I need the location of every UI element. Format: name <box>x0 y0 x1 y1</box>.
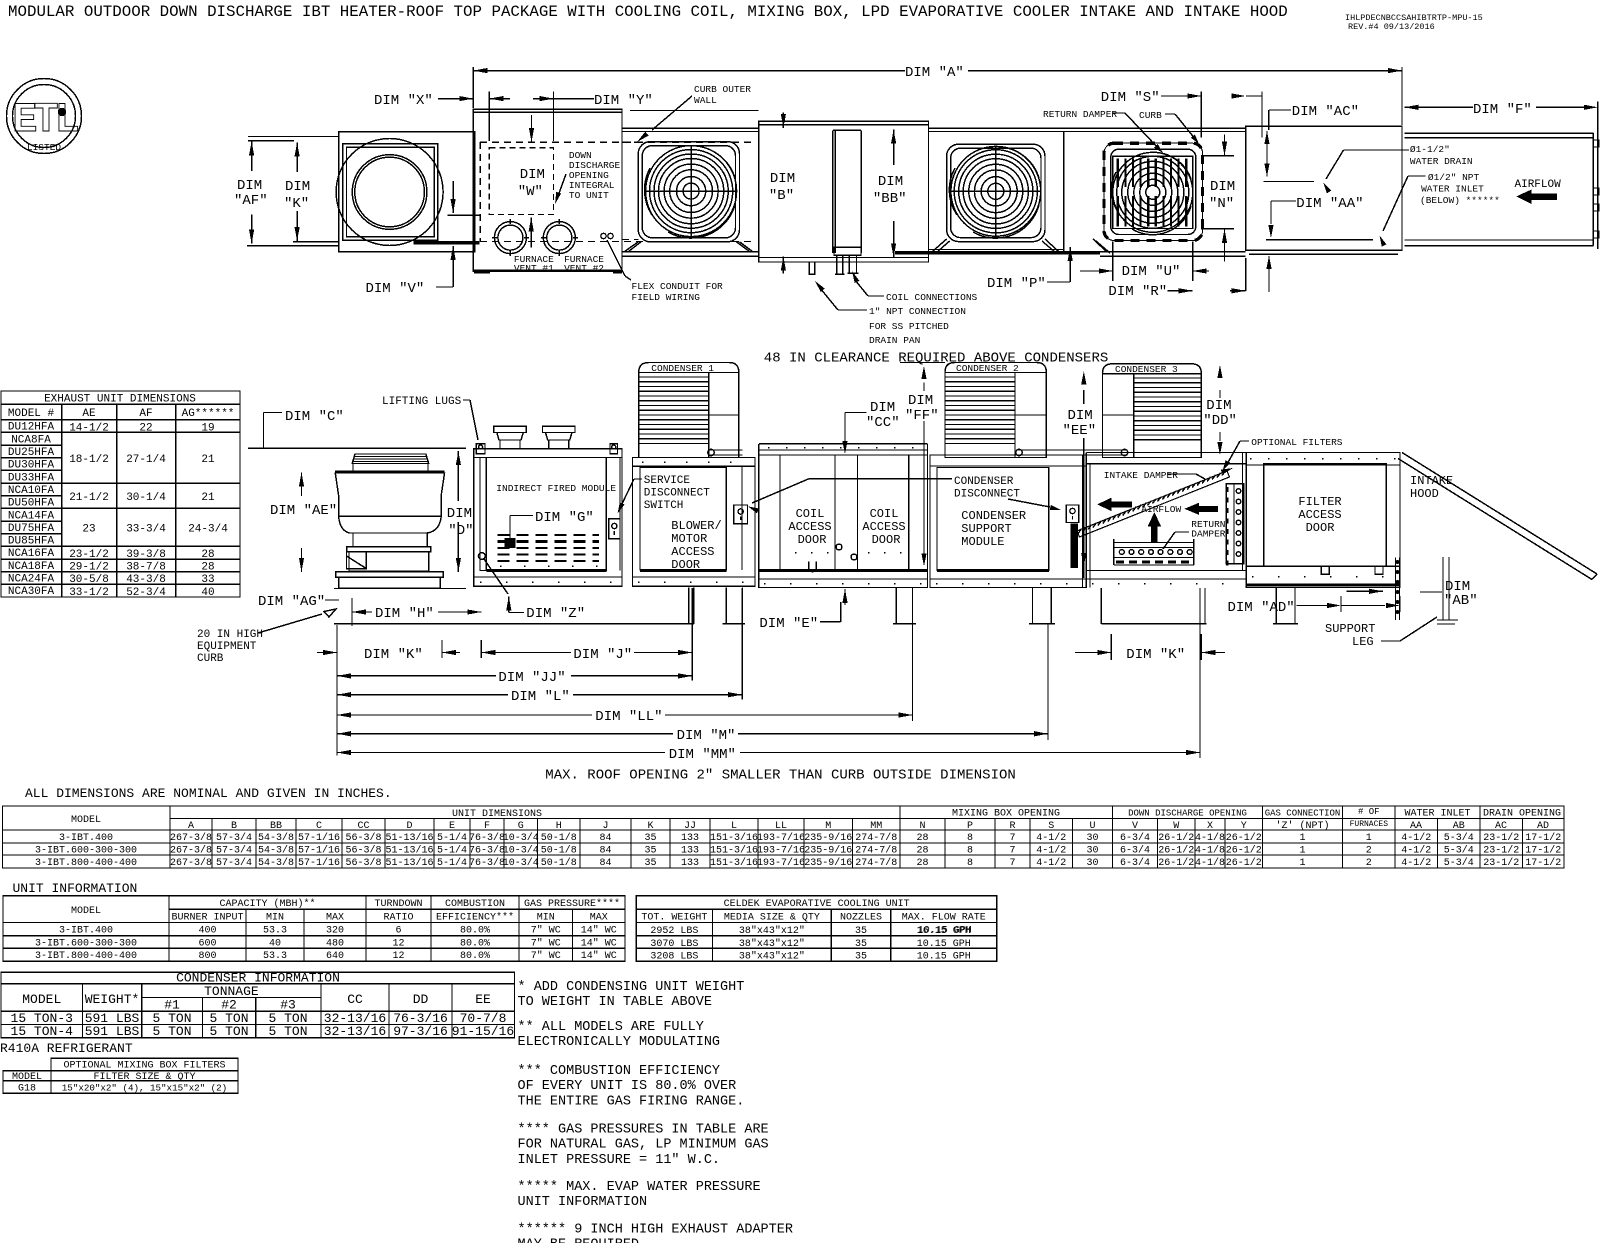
svg-text:AC: AC <box>1495 821 1507 832</box>
svg-text:97-3/16: 97-3/16 <box>393 1024 448 1039</box>
svg-text:39-3/8: 39-3/8 <box>126 549 166 561</box>
svg-text:DIM: DIM <box>870 400 895 416</box>
svg-text:23-1/2: 23-1/2 <box>1483 844 1519 856</box>
svg-text:21: 21 <box>201 492 215 504</box>
svg-text:"FF": "FF" <box>905 408 939 424</box>
svg-text:INTAKE: INTAKE <box>1410 474 1453 488</box>
svg-text:MEDIA SIZE & QTY: MEDIA SIZE & QTY <box>724 913 820 924</box>
svg-text:10-3/4: 10-3/4 <box>503 857 539 869</box>
svg-text:TO UNIT: TO UNIT <box>569 190 609 201</box>
svg-text:235-9/16: 235-9/16 <box>804 844 852 856</box>
svg-text:3-IBT.800-400-400: 3-IBT.800-400-400 <box>35 951 137 962</box>
svg-text:DIM "J": DIM "J" <box>573 647 632 663</box>
svg-text:267-3/8: 267-3/8 <box>170 832 212 844</box>
svg-text:EE: EE <box>475 992 491 1007</box>
svg-text:COIL: COIL <box>796 507 825 521</box>
svg-text:DRAIN PAN: DRAIN PAN <box>869 335 920 346</box>
svg-text:SUPPORT: SUPPORT <box>1325 622 1375 636</box>
svg-text:AD: AD <box>1537 821 1549 832</box>
svg-text:**** GAS PRESSURES IN TABLE AR: **** GAS PRESSURES IN TABLE ARE <box>518 1123 769 1138</box>
svg-text:SERVICE: SERVICE <box>644 475 691 487</box>
svg-text:8: 8 <box>967 833 973 844</box>
svg-text:DOOR: DOOR <box>798 533 827 547</box>
svg-text:33: 33 <box>201 574 214 586</box>
svg-text:GAS CONNECTION: GAS CONNECTION <box>1265 809 1341 819</box>
svg-text:84: 84 <box>599 833 611 844</box>
svg-text:38"x43"x12": 38"x43"x12" <box>739 938 805 950</box>
svg-text:57-3/4: 57-3/4 <box>216 844 252 856</box>
svg-text:2: 2 <box>1366 858 1372 869</box>
svg-text:30-1/4: 30-1/4 <box>126 492 166 504</box>
svg-text:DD: DD <box>413 992 429 1007</box>
svg-text:CELDEK EVAPORATIVE COOLING UNI: CELDEK EVAPORATIVE COOLING UNIT <box>724 899 910 910</box>
svg-text:WATER DRAIN: WATER DRAIN <box>1410 156 1473 167</box>
svg-text:THE ENTIRE GAS FIRING RANGE.: THE ENTIRE GAS FIRING RANGE. <box>518 1094 745 1109</box>
svg-text:57-1/16: 57-1/16 <box>298 857 340 869</box>
svg-text:MODEL: MODEL <box>71 906 101 917</box>
svg-text:80.0%: 80.0% <box>460 926 490 937</box>
svg-text:Ø1/2" NPT: Ø1/2" NPT <box>1428 172 1480 183</box>
svg-text:MODEL: MODEL <box>22 992 61 1007</box>
svg-text:COIL CONNECTIONS: COIL CONNECTIONS <box>886 292 978 303</box>
svg-text:Y: Y <box>1241 821 1247 832</box>
svg-text:54-3/8: 54-3/8 <box>258 832 294 844</box>
svg-text:235-9/16: 235-9/16 <box>804 832 852 844</box>
svg-text:16.15 GPH: 16.15 GPH <box>917 926 971 937</box>
svg-text:8: 8 <box>967 858 973 869</box>
svg-text:51-13/16: 51-13/16 <box>385 844 433 856</box>
svg-text:N: N <box>919 821 925 832</box>
svg-text:26-1/2: 26-1/2 <box>1226 832 1262 844</box>
svg-text:(BELOW) ******: (BELOW) ****** <box>1420 195 1500 206</box>
svg-text:FOR SS PITCHED: FOR SS PITCHED <box>869 321 949 332</box>
svg-text:NCA18FA: NCA18FA <box>8 561 55 573</box>
svg-text:50-1/8: 50-1/8 <box>541 857 577 869</box>
svg-text:76-3/8: 76-3/8 <box>469 844 505 856</box>
svg-text:18-1/2: 18-1/2 <box>69 454 109 466</box>
svg-text:DIM "E": DIM "E" <box>759 616 818 632</box>
svg-text:6-3/4: 6-3/4 <box>1120 832 1150 844</box>
svg-text:DOOR: DOOR <box>671 558 700 572</box>
svg-text:M: M <box>825 821 831 832</box>
svg-text:5 TON: 5 TON <box>268 1024 307 1039</box>
svg-text:*** COMBUSTION EFFICIENCY: *** COMBUSTION EFFICIENCY <box>518 1064 721 1079</box>
svg-text:84: 84 <box>599 858 611 869</box>
svg-text:B: B <box>231 821 237 832</box>
svg-text:28: 28 <box>916 845 928 856</box>
svg-text:"N": "N" <box>1209 196 1234 212</box>
svg-text:DIM "K": DIM "K" <box>1126 647 1185 663</box>
svg-text:MAX: MAX <box>590 913 608 924</box>
svg-text:MODULAR OUTDOOR DOWN DISCHARGE: MODULAR OUTDOOR DOWN DISCHARGE IBT HEATE… <box>8 3 1288 21</box>
svg-text:76-3/8: 76-3/8 <box>469 832 505 844</box>
svg-text:20 IN HIGH: 20 IN HIGH <box>197 629 263 641</box>
svg-text:TO WEIGHT IN TABLE ABOVE: TO WEIGHT IN TABLE ABOVE <box>518 995 712 1010</box>
svg-text:U: U <box>1089 821 1095 832</box>
svg-text:FURNACES: FURNACES <box>1350 820 1389 829</box>
svg-text:DU30HFA: DU30HFA <box>8 460 55 472</box>
svg-text:ELECTRONICALLY MODULATING: ELECTRONICALLY MODULATING <box>518 1035 721 1050</box>
svg-text:A: A <box>188 821 194 832</box>
svg-text:14" WC: 14" WC <box>581 925 617 937</box>
svg-text:MAX. FLOW RATE: MAX. FLOW RATE <box>902 913 986 924</box>
svg-text:51-13/16: 51-13/16 <box>385 857 433 869</box>
svg-text:33-1/2: 33-1/2 <box>69 587 109 599</box>
svg-text:56-3/8: 56-3/8 <box>345 857 381 869</box>
svg-text:BB: BB <box>270 821 282 832</box>
svg-text:VENT #2: VENT #2 <box>564 263 604 274</box>
svg-text:EXHAUST UNIT DIMENSIONS: EXHAUST UNIT DIMENSIONS <box>44 394 196 406</box>
svg-text:32-13/16: 32-13/16 <box>324 1024 386 1039</box>
svg-text:DIM "AE": DIM "AE" <box>270 503 337 519</box>
svg-text:DIM "U": DIM "U" <box>1122 264 1181 280</box>
svg-text:CC: CC <box>357 821 369 832</box>
svg-text:DIM "A": DIM "A" <box>905 65 964 81</box>
svg-text:H: H <box>556 821 562 832</box>
svg-text:K: K <box>647 821 653 832</box>
svg-text:4-1/2: 4-1/2 <box>1036 832 1066 844</box>
svg-text:DIM "K": DIM "K" <box>364 647 423 663</box>
svg-text:DIM: DIM <box>237 178 262 194</box>
svg-text:UNIT INFORMATION: UNIT INFORMATION <box>13 881 138 896</box>
svg-text:FIELD WIRING: FIELD WIRING <box>632 292 701 303</box>
svg-text:DIM: DIM <box>447 506 472 522</box>
svg-text:193-7/16: 193-7/16 <box>757 857 805 869</box>
svg-text:DIM: DIM <box>285 179 310 195</box>
svg-text:DOWN DISCHARGE OPENING: DOWN DISCHARGE OPENING <box>1128 809 1247 819</box>
svg-text:12: 12 <box>392 938 404 949</box>
svg-text:FOR NATURAL GAS, LP MINIMUM G: FOR NATURAL GAS, LP MINIMUM GAS <box>518 1138 769 1153</box>
svg-text:AE: AE <box>82 408 96 420</box>
svg-text:OF EVERY UNIT IS 80.0% OVER: OF EVERY UNIT IS 80.0% OVER <box>518 1079 737 1094</box>
svg-text:3-IBT.400: 3-IBT.400 <box>59 833 113 844</box>
svg-text:COMBUSTION: COMBUSTION <box>445 899 505 910</box>
svg-text:10.15 GPH: 10.15 GPH <box>917 939 971 950</box>
svg-text:AIRFLOW: AIRFLOW <box>1141 504 1181 515</box>
svg-text:267-3/8: 267-3/8 <box>170 844 212 856</box>
svg-text:BLOWER/: BLOWER/ <box>671 519 721 533</box>
svg-text:29-1/2: 29-1/2 <box>69 562 109 574</box>
svg-text:591 LBS: 591 LBS <box>85 1024 140 1039</box>
svg-text:26-1/2: 26-1/2 <box>1226 857 1262 869</box>
svg-text:91-15/16: 91-15/16 <box>452 1024 514 1039</box>
svg-text:24-3/4: 24-3/4 <box>188 524 228 536</box>
svg-text:1: 1 <box>1299 833 1305 844</box>
svg-text:23-1/2: 23-1/2 <box>1483 857 1519 869</box>
svg-text:AF: AF <box>139 408 152 420</box>
svg-text:NOZZLES: NOZZLES <box>840 913 882 924</box>
svg-text:15"x20"x2" (4), 15"x15"x2" (2): 15"x20"x2" (4), 15"x15"x2" (2) <box>62 1082 227 1093</box>
svg-text:35: 35 <box>644 833 656 844</box>
svg-text:E: E <box>449 821 455 832</box>
svg-text:28: 28 <box>201 562 214 574</box>
svg-text:7" WC: 7" WC <box>531 925 561 937</box>
svg-text:SWITCH: SWITCH <box>644 500 684 512</box>
svg-text:33-3/4: 33-3/4 <box>126 524 166 536</box>
svg-text:3208 LBS: 3208 LBS <box>650 952 698 963</box>
svg-text:5-3/4: 5-3/4 <box>1444 857 1474 869</box>
svg-text:SUPPORT: SUPPORT <box>961 522 1011 536</box>
svg-text:AG******: AG****** <box>182 408 235 420</box>
svg-text:DIM "Y": DIM "Y" <box>594 93 653 109</box>
svg-text:WALL: WALL <box>694 95 717 106</box>
svg-text:4-1/8: 4-1/8 <box>1195 832 1225 844</box>
svg-text:P: P <box>967 821 973 832</box>
svg-text:1" NPT CONNECTION: 1" NPT CONNECTION <box>869 306 966 317</box>
svg-text:133: 133 <box>681 833 699 844</box>
svg-text:7: 7 <box>1009 858 1015 869</box>
svg-text:NCA30FA: NCA30FA <box>8 586 55 598</box>
svg-text:274-7/8: 274-7/8 <box>855 857 897 869</box>
svg-text:G: G <box>518 821 524 832</box>
svg-text:151-3/16: 151-3/16 <box>710 832 758 844</box>
svg-text:57-3/4: 57-3/4 <box>216 857 252 869</box>
svg-text:REV.#4 09/13/2016: REV.#4 09/13/2016 <box>1348 22 1435 32</box>
svg-text:53.3: 53.3 <box>263 951 287 962</box>
svg-text:38"x43"x12": 38"x43"x12" <box>739 951 805 963</box>
svg-text:22: 22 <box>139 422 152 434</box>
svg-text:5-1/4: 5-1/4 <box>437 832 467 844</box>
svg-text:5-1/4: 5-1/4 <box>437 844 467 856</box>
svg-text:****** 9 INCH HIGH EXHAUST ADA: ****** 9 INCH HIGH EXHAUST ADAPTER <box>518 1223 793 1238</box>
svg-text:"AF": "AF" <box>234 193 268 209</box>
svg-text:DIM "G": DIM "G" <box>535 510 594 526</box>
svg-text:MIN: MIN <box>537 913 555 924</box>
svg-text:151-3/16: 151-3/16 <box>710 844 758 856</box>
svg-text:# OF: # OF <box>1358 807 1380 817</box>
svg-text:10.15 GPH: 10.15 GPH <box>917 952 971 963</box>
svg-text:"W": "W" <box>518 184 543 200</box>
svg-text:56-3/8: 56-3/8 <box>345 844 381 856</box>
svg-text:MM: MM <box>870 821 882 832</box>
svg-text:ACCESS: ACCESS <box>862 520 905 534</box>
svg-text:DIM "S": DIM "S" <box>1101 90 1160 106</box>
svg-text:21: 21 <box>201 454 215 466</box>
svg-text:14" WC: 14" WC <box>581 950 617 962</box>
svg-text:28: 28 <box>916 858 928 869</box>
svg-text:51-13/16: 51-13/16 <box>385 832 433 844</box>
svg-text:DIM "AA": DIM "AA" <box>1296 196 1363 212</box>
svg-text:ACCESS: ACCESS <box>1298 508 1341 522</box>
svg-text:DU75HFA: DU75HFA <box>8 523 55 535</box>
svg-text:DIM "JJ": DIM "JJ" <box>498 670 565 686</box>
svg-text:23-1/2: 23-1/2 <box>69 549 109 561</box>
svg-text:DIM "V": DIM "V" <box>366 281 425 297</box>
svg-text:Ø1-1/2": Ø1-1/2" <box>1410 144 1450 155</box>
svg-text:TOT. WEIGHT: TOT. WEIGHT <box>641 913 707 924</box>
svg-text:CONDENSER: CONDENSER <box>961 509 1026 523</box>
svg-text:J: J <box>602 821 608 832</box>
svg-text:3-IBT.600-300-300: 3-IBT.600-300-300 <box>35 845 137 856</box>
svg-text:5-1/4: 5-1/4 <box>437 857 467 869</box>
svg-text:WEIGHT*: WEIGHT* <box>85 992 140 1007</box>
svg-text:3-IBT.800-400-400: 3-IBT.800-400-400 <box>35 858 137 869</box>
svg-text:FILTER SIZE & QTY: FILTER SIZE & QTY <box>93 1072 195 1083</box>
svg-text:800: 800 <box>198 951 216 962</box>
svg-text:35: 35 <box>855 939 867 950</box>
svg-text:4-1/2: 4-1/2 <box>1401 844 1431 856</box>
svg-text:WATER INLET: WATER INLET <box>1421 184 1484 195</box>
svg-text:8: 8 <box>967 845 973 856</box>
svg-text:DIM "MM": DIM "MM" <box>669 747 736 763</box>
svg-text:35: 35 <box>644 845 656 856</box>
svg-text:DU85HFA: DU85HFA <box>8 536 55 548</box>
svg-text:274-7/8: 274-7/8 <box>855 844 897 856</box>
svg-text:54-3/8: 54-3/8 <box>258 844 294 856</box>
svg-text:5 TON: 5 TON <box>152 1024 191 1039</box>
svg-text:R410A REFRIGERANT: R410A REFRIGERANT <box>0 1041 133 1056</box>
svg-text:5 TON: 5 TON <box>209 1024 248 1039</box>
svg-text:4-1/8: 4-1/8 <box>1195 857 1225 869</box>
svg-text:DIM: DIM <box>908 393 933 409</box>
svg-text:76-3/8: 76-3/8 <box>469 857 505 869</box>
svg-text:43-3/8: 43-3/8 <box>126 574 166 586</box>
svg-text:MODEL: MODEL <box>71 815 101 826</box>
svg-text:F: F <box>484 821 490 832</box>
svg-text:BURNER INPUT: BURNER INPUT <box>171 913 243 924</box>
svg-text:3-IBT.600-300-300: 3-IBT.600-300-300 <box>35 938 137 949</box>
svg-text:6-3/4: 6-3/4 <box>1120 844 1150 856</box>
svg-text:"BB": "BB" <box>873 191 907 207</box>
svg-text:DU12HFA: DU12HFA <box>8 422 55 434</box>
svg-text:"CC": "CC" <box>866 415 900 431</box>
svg-text:50-1/8: 50-1/8 <box>541 832 577 844</box>
svg-text:MODEL: MODEL <box>12 1072 42 1083</box>
svg-text:57-1/16: 57-1/16 <box>298 844 340 856</box>
svg-text:EFFICIENCY***: EFFICIENCY*** <box>436 912 514 924</box>
svg-text:R: R <box>1009 821 1015 832</box>
svg-text:DIM "L": DIM "L" <box>511 689 570 705</box>
svg-text:DIM "H": DIM "H" <box>375 606 434 622</box>
svg-text:G18: G18 <box>18 1083 36 1094</box>
svg-text:OPTIONAL MIXING BOX FILTERS: OPTIONAL MIXING BOX FILTERS <box>63 1061 225 1072</box>
svg-text:7" WC: 7" WC <box>531 950 561 962</box>
svg-text:DIM "X": DIM "X" <box>374 93 433 109</box>
svg-text:EQUIPMENT: EQUIPMENT <box>197 641 257 653</box>
svg-text:5-3/4: 5-3/4 <box>1444 844 1474 856</box>
svg-text:5-3/4: 5-3/4 <box>1444 832 1474 844</box>
svg-text:DIM: DIM <box>878 174 903 190</box>
svg-text:DIM "F": DIM "F" <box>1473 102 1532 118</box>
svg-text:12: 12 <box>392 951 404 962</box>
svg-text:26-1/2: 26-1/2 <box>1226 844 1262 856</box>
svg-text:DIM: DIM <box>1206 398 1231 414</box>
svg-text:2: 2 <box>1366 845 1372 856</box>
svg-text:L: L <box>731 821 737 832</box>
svg-text:ALL DIMENSIONS ARE NOMINAL AND: ALL DIMENSIONS ARE NOMINAL AND GIVEN IN … <box>25 786 392 801</box>
svg-text:DRAIN OPENING: DRAIN OPENING <box>1483 809 1561 820</box>
svg-text:INTAKE DAMPER: INTAKE DAMPER <box>1104 470 1178 481</box>
svg-text:35: 35 <box>855 952 867 963</box>
svg-text:193-7/16: 193-7/16 <box>757 844 805 856</box>
svg-text:DIM "AD": DIM "AD" <box>1228 600 1295 616</box>
svg-text:14-1/2: 14-1/2 <box>69 422 109 434</box>
svg-text:LL: LL <box>775 821 787 832</box>
svg-text:26-1/2: 26-1/2 <box>1158 844 1194 856</box>
svg-text:DISCONNECT: DISCONNECT <box>954 489 1020 501</box>
svg-text:AB: AB <box>1453 821 1465 832</box>
svg-text:35: 35 <box>855 926 867 937</box>
svg-text:57-3/4: 57-3/4 <box>216 832 252 844</box>
svg-text:OPTIONAL FILTERS: OPTIONAL FILTERS <box>1251 437 1343 448</box>
svg-text:COIL: COIL <box>870 507 899 521</box>
svg-text:***** MAX. EVAP WATER PRESSURE: ***** MAX. EVAP WATER PRESSURE <box>518 1180 761 1195</box>
svg-text:1: 1 <box>1299 858 1305 869</box>
svg-text:480: 480 <box>326 938 344 949</box>
svg-text:1: 1 <box>1366 833 1372 844</box>
svg-text:57-1/16: 57-1/16 <box>298 832 340 844</box>
svg-text:"K": "K" <box>284 196 309 212</box>
svg-text:80.0%: 80.0% <box>460 938 490 949</box>
svg-text:30: 30 <box>1086 845 1098 856</box>
svg-text:235-9/16: 235-9/16 <box>804 857 852 869</box>
svg-text:MODEL #: MODEL # <box>8 408 55 420</box>
svg-text:DIM: DIM <box>770 171 795 187</box>
svg-text:MIXING BOX OPENING: MIXING BOX OPENING <box>952 809 1060 820</box>
svg-text:7: 7 <box>1009 833 1015 844</box>
svg-text:4-1/2: 4-1/2 <box>1401 857 1431 869</box>
svg-text:DOOR: DOOR <box>1306 521 1335 535</box>
svg-text:133: 133 <box>681 845 699 856</box>
svg-text:CONDENSER: CONDENSER <box>954 476 1014 488</box>
svg-text:"AB": "AB" <box>1444 593 1478 609</box>
svg-text:4-1/2: 4-1/2 <box>1036 857 1066 869</box>
svg-text:DIM "M": DIM "M" <box>677 728 736 744</box>
svg-text:27-1/4: 27-1/4 <box>126 454 166 466</box>
svg-text:MAX: MAX <box>326 913 344 924</box>
svg-text:AA: AA <box>1410 821 1422 832</box>
svg-text:DIM "C": DIM "C" <box>285 409 344 425</box>
svg-text:"D": "D" <box>448 523 473 539</box>
svg-text:CURB OUTER: CURB OUTER <box>694 84 751 95</box>
svg-text:40: 40 <box>269 938 281 949</box>
svg-text:38"x43"x12": 38"x43"x12" <box>739 925 805 937</box>
svg-text:FILTER: FILTER <box>1298 495 1341 509</box>
svg-text:MAY BE REQUIRED: MAY BE REQUIRED <box>518 1238 640 1243</box>
svg-text:4-1/2: 4-1/2 <box>1036 844 1066 856</box>
svg-text:WATER INLET: WATER INLET <box>1404 809 1470 820</box>
svg-text:DIM "LL": DIM "LL" <box>595 709 662 725</box>
svg-text:17-1/2: 17-1/2 <box>1525 832 1561 844</box>
svg-text:UNIT INFORMATION: UNIT INFORMATION <box>518 1195 648 1210</box>
svg-text:320: 320 <box>326 926 344 937</box>
svg-text:19: 19 <box>201 422 214 434</box>
svg-text:30: 30 <box>1086 858 1098 869</box>
svg-text:3070 LBS: 3070 LBS <box>650 939 698 950</box>
svg-text:151-3/16: 151-3/16 <box>710 857 758 869</box>
svg-text:"B": "B" <box>769 188 794 204</box>
svg-text:133: 133 <box>681 858 699 869</box>
svg-text:* ADD CONDENSING UNIT WEIGHT: * ADD CONDENSING UNIT WEIGHT <box>518 980 745 995</box>
svg-text:X: X <box>1207 821 1213 832</box>
svg-text:"EE": "EE" <box>1063 423 1097 439</box>
svg-text:48 IN CLEARANCE REQUIRED ABOVE: 48 IN CLEARANCE REQUIRED ABOVE CONDENSER… <box>764 351 1108 367</box>
svg-text:DIM "Z": DIM "Z" <box>526 606 585 622</box>
svg-text:52-3/4: 52-3/4 <box>126 587 166 599</box>
svg-text:MOTOR: MOTOR <box>671 532 707 546</box>
svg-text:28: 28 <box>916 833 928 844</box>
svg-text:26-1/2: 26-1/2 <box>1158 857 1194 869</box>
svg-text:35: 35 <box>644 858 656 869</box>
svg-text:193-7/16: 193-7/16 <box>757 832 805 844</box>
svg-text:JJ: JJ <box>684 821 696 832</box>
svg-text:MIN: MIN <box>266 913 284 924</box>
svg-text:DIM "R": DIM "R" <box>1108 284 1167 300</box>
svg-text:CURB: CURB <box>197 653 224 665</box>
svg-text:CC: CC <box>347 992 363 1007</box>
svg-text:MODULE: MODULE <box>961 535 1004 549</box>
svg-text:MAX. ROOF OPENING 2" SMALLER T: MAX. ROOF OPENING 2" SMALLER THAN CURB O… <box>545 768 1015 784</box>
